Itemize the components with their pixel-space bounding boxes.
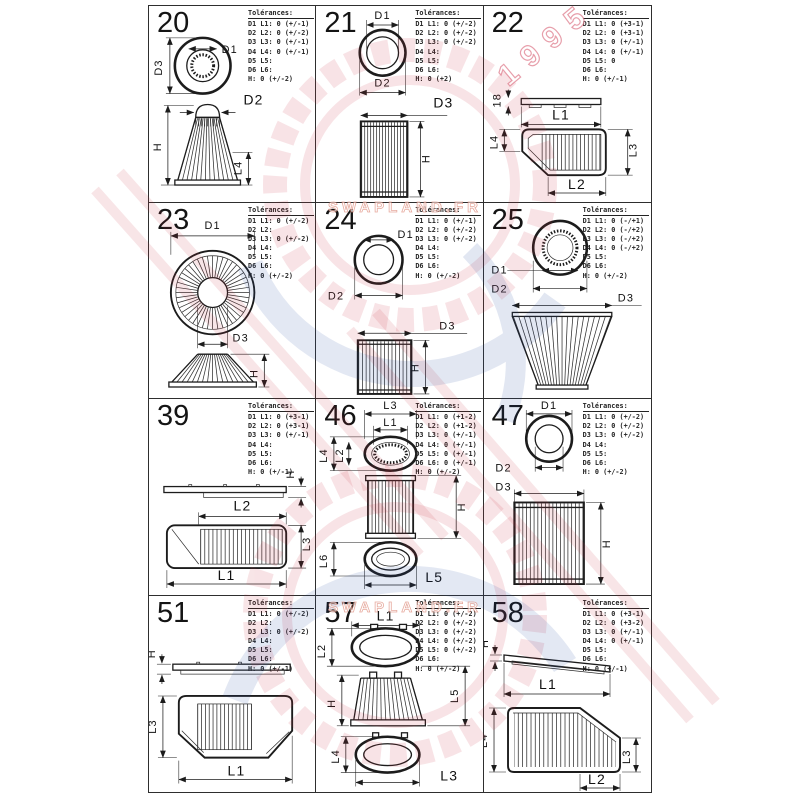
tolerance-line: H: 0 (+/-2)	[583, 468, 649, 477]
tolerance-line: D5 L5:	[415, 253, 481, 262]
tolerance-line: D6 L6:	[248, 262, 314, 271]
tolerance-title: Tolérances:	[415, 599, 481, 609]
tolerance-line: D4 L4:	[583, 441, 649, 450]
tolerance-line: D5 L5:	[248, 450, 314, 459]
filter-cell-22: 22 Tolérances: D1 L1: 0 (+3-1) D2 L2: 0 …	[484, 6, 651, 203]
dim-label-d2: D2	[328, 290, 344, 302]
dim-label-d1: D1	[398, 228, 414, 240]
dim-label-l3: L3	[384, 400, 399, 412]
dim-label-d2: D2	[495, 463, 511, 475]
tolerance-line: D5 L5:	[583, 450, 649, 459]
tolerance-line: D2 L2: 0 (+1-2)	[415, 422, 481, 431]
tolerance-table: Tolérances: D1 L1: 0 (-/+1) D2 L2: 0 (-/…	[583, 206, 649, 281]
dim-label-l3: L3	[301, 537, 313, 552]
dim-label-l4: L4	[232, 161, 244, 176]
tolerance-line: H: 0 (+/-2)	[583, 272, 649, 281]
dim-label-h: H	[326, 698, 338, 707]
tolerance-line: H: 0 (+2)	[415, 75, 481, 84]
tolerance-line: D6 L6:	[415, 66, 481, 75]
tolerance-line: D4 L4: 0 (+/-1)	[583, 48, 649, 57]
tolerance-title: Tolérances:	[583, 206, 649, 216]
tolerance-line: D5 L5:	[583, 253, 649, 262]
tolerance-table: Tolérances: D1 L1: 0 (+3-1) D2 L2: 0 (+3…	[583, 599, 649, 674]
tolerance-line: D1 L1: 0 (+/-2)	[415, 610, 481, 619]
tolerance-line: H: 0 (+/-2)	[415, 665, 481, 674]
tolerance-line: D3 L3: 0 (+/-1)	[248, 431, 314, 440]
tolerance-line: D1 L1: 0 (+/-2)	[248, 217, 314, 226]
tolerance-line: D3 L3: 0 (+/-2)	[415, 628, 481, 637]
tolerance-table: Tolérances: D1 L1: 0 (+/-2) D2 L2: D3 L3…	[248, 599, 314, 674]
filter-cell-21: 21 Tolérances: D1 L1: 0 (+/-2) D2 L2: 0 …	[316, 6, 483, 203]
dim-label-d1: D1	[375, 10, 391, 22]
tolerance-line: D6 L6:	[415, 655, 481, 664]
tolerance-line: D5 L5: 0 (+/-1)	[415, 450, 481, 459]
tolerance-line: H: 0 (+/-1)	[583, 75, 649, 84]
tolerance-line: D2 L2: 0 (-/+2)	[583, 226, 649, 235]
dim-label-h: H	[149, 649, 158, 658]
tolerance-line: H: 0 (+/-1)	[583, 665, 649, 674]
tolerance-line: D1 L1: 0 (+3-1)	[248, 413, 314, 422]
tolerance-line: D4 L4: 0 (-/+2)	[583, 244, 649, 253]
tolerance-line: D4 L4:	[248, 441, 314, 450]
tolerance-line: D6 L6:	[248, 66, 314, 75]
tolerance-line: D1 L1: 0 (+3-1)	[583, 20, 649, 29]
tolerance-table: Tolérances: D1 L1: 0 (+3-1) D2 L2: 0 (+3…	[583, 9, 649, 84]
dim-label-l1: L1	[218, 567, 236, 583]
dim-label-d1: D1	[204, 219, 220, 231]
tolerance-line: D2 L2: 0 (+3-1)	[583, 29, 649, 38]
tolerance-line: H: 0 (+/-2)	[415, 272, 481, 281]
tolerance-line: D6 L6:	[248, 459, 314, 468]
filter-number: 47	[492, 400, 524, 433]
tolerance-line: D2 L2: 0 (+3-1)	[248, 422, 314, 431]
tolerance-line: D3 L3: 0 (+/-2)	[415, 38, 481, 47]
filter-cell-57: 57 Tolérances: D1 L1: 0 (+/-2) D2 L2: 0 …	[316, 596, 483, 793]
tolerance-line: D4 L4:	[248, 637, 314, 646]
filter-cell-23: 23 Tolérances: D1 L1: 0 (+/-2) D2 L2: D3…	[149, 203, 316, 400]
tolerance-line: D3 L3: 0 (+/-1)	[583, 38, 649, 47]
tolerance-line: D2 L2:	[248, 619, 314, 628]
tolerance-line: D5 L5: 0 (+/-2)	[415, 646, 481, 655]
dim-label-l1: L1	[228, 762, 246, 778]
filter-number: 23	[157, 204, 189, 237]
tolerance-line: D3 L3: 0 (+/-1)	[415, 431, 481, 440]
tolerance-line: D2 L2: 0 (+/-2)	[415, 29, 481, 38]
dim-label-d3: D3	[153, 59, 165, 75]
tolerance-line: D4 L4: 0 (+/-2)	[415, 637, 481, 646]
tolerance-line: D1 L1: 0 (-/+1)	[583, 217, 649, 226]
tolerance-line: D5 L5: 0	[583, 57, 649, 66]
dim-label-l5: L5	[449, 688, 461, 703]
dim-label-d3: D3	[434, 94, 454, 110]
dim-label-d2: D2	[243, 91, 263, 107]
dim-label-h: H	[456, 502, 468, 511]
tolerance-title: Tolérances:	[248, 599, 314, 609]
tolerance-line: D1 L1: 0 (+/-1)	[248, 20, 314, 29]
tolerance-line: D6 L6:	[583, 262, 649, 271]
dim-label-d1: D1	[541, 400, 557, 412]
dim-label-l3: L3	[621, 749, 633, 764]
filter-cell-25: 25 Tolérances: D1 L1: 0 (-/+1) D2 L2: 0 …	[484, 203, 651, 400]
tolerance-line: D1 L1: 0 (+1-2)	[415, 413, 481, 422]
tolerance-line: D6 L6: 0 (+/-1)	[415, 459, 481, 468]
filter-cell-46: 46 Tolérances: D1 L1: 0 (+1-2) D2 L2: 0 …	[316, 399, 483, 596]
dim-label-l2: L2	[316, 643, 328, 658]
tolerance-table: Tolérances: D1 L1: 0 (+3-1) D2 L2: 0 (+3…	[248, 402, 314, 477]
filter-cell-24: 24 Tolérances: D1 L1: 0 (+/-1) D2 L2: 0 …	[316, 203, 483, 400]
dim-label-l2: L2	[234, 497, 252, 513]
dim-label-h: H	[248, 368, 260, 377]
tolerance-line: D6 L6:	[248, 655, 314, 664]
tolerance-line: D3 L3: 0 (+/-2)	[248, 235, 314, 244]
tolerance-line: D1 L1: 0 (+/-2)	[583, 413, 649, 422]
tolerance-line: D6 L6:	[583, 66, 649, 75]
tolerance-line: D2 L2: 0 (+/-2)	[415, 619, 481, 628]
dim-label-l3: L3	[149, 719, 159, 734]
tolerance-line: H: 0 (+/-1)	[248, 468, 314, 477]
tolerance-line: D2 L2:	[248, 226, 314, 235]
dim-label-l2: L2	[588, 771, 606, 787]
tolerance-title: Tolérances:	[415, 402, 481, 412]
tolerance-title: Tolérances:	[583, 9, 649, 19]
tolerance-line: D1 L1: 0 (+/-2)	[415, 20, 481, 29]
filter-diagram-grid: 20 Tolérances: D1 L1: 0 (+/-1) D2 L2: 0 …	[148, 5, 652, 793]
filter-cell-58: 58 Tolérances: D1 L1: 0 (+3-1) D2 L2: 0 …	[484, 596, 651, 793]
tolerance-line: D1 L1: 0 (+3-1)	[583, 610, 649, 619]
filter-number: 39	[157, 400, 189, 433]
dim-label-d3: D3	[495, 482, 511, 494]
filter-number: 24	[324, 204, 356, 237]
tolerance-line: D2 L2: 0 (+3-2)	[583, 619, 649, 628]
tolerance-table: Tolérances: D1 L1: 0 (+1-2) D2 L2: 0 (+1…	[415, 402, 481, 477]
tolerance-table: Tolérances: D1 L1: 0 (+/-2) D2 L2: D3 L3…	[248, 206, 314, 281]
filter-number: 20	[157, 7, 189, 40]
filter-number: 57	[324, 597, 356, 630]
dim-label-d2: D2	[491, 283, 507, 295]
dim-label-d1: D1	[222, 44, 238, 56]
dim-label-d2: D2	[375, 78, 391, 90]
tolerance-table: Tolérances: D1 L1: 0 (+/-1) D2 L2: 0 (+/…	[248, 9, 314, 84]
tolerance-title: Tolérances:	[248, 402, 314, 412]
dim-label-l4: L4	[330, 749, 342, 764]
dim-label-l2: L2	[334, 448, 346, 463]
tolerance-line: D5 L5:	[248, 253, 314, 262]
tolerance-table: Tolérances: D1 L1: 0 (+/-2) D2 L2: 0 (+/…	[583, 402, 649, 477]
dim-label-l1: L1	[377, 607, 395, 623]
tolerance-title: Tolérances:	[415, 206, 481, 216]
tolerance-line: D4 L4: 0 (+/-1)	[248, 48, 314, 57]
filter-number: 22	[492, 7, 524, 40]
catalog-page: { "page": {"background": "#ffffff", "lin…	[0, 0, 800, 800]
dim-label-d3: D3	[440, 320, 456, 332]
tolerance-line: D4 L4: 0 (+/-1)	[415, 441, 481, 450]
tolerance-line: D4 L4:	[415, 48, 481, 57]
tolerance-line: H: 0 (+/-2)	[248, 75, 314, 84]
tolerance-line: D3 L3: 0 (+/-1)	[248, 38, 314, 47]
tolerance-title: Tolérances:	[248, 9, 314, 19]
dim-label-l4: L4	[484, 733, 490, 748]
tolerance-line: H: 0 (+/-2)	[248, 272, 314, 281]
dim-label-h: H	[152, 142, 164, 151]
tolerance-line: D4 L4:	[248, 244, 314, 253]
dim-label-h: H	[600, 539, 612, 548]
tolerance-line: H: 0 (+/-2)	[415, 468, 481, 477]
tolerance-table: Tolérances: D1 L1: 0 (+/-2) D2 L2: 0 (+/…	[415, 599, 481, 674]
filter-cell-51: 51 Tolérances: D1 L1: 0 (+/-2) D2 L2: D3…	[149, 596, 316, 793]
filter-number: 51	[157, 597, 189, 630]
dim-label-l6: L6	[318, 554, 330, 569]
filter-number: 25	[492, 204, 524, 237]
tolerance-line: D6 L6:	[415, 262, 481, 271]
dim-label-l1: L1	[384, 417, 399, 429]
tolerance-title: Tolérances:	[415, 9, 481, 19]
dim-label-18: 18	[491, 93, 503, 108]
tolerance-line: D3 L3: 0 (+/-2)	[248, 628, 314, 637]
dim-label-d3: D3	[617, 292, 633, 304]
dim-label-l1: L1	[552, 106, 570, 122]
tolerance-line: D3 L3: 0 (+/-2)	[583, 431, 649, 440]
tolerance-line: D1 L1: 0 (+/-1)	[415, 217, 481, 226]
tolerance-line: D5 L5:	[415, 57, 481, 66]
tolerance-table: Tolérances: D1 L1: 0 (+/-1) D2 L2: 0 (+/…	[415, 206, 481, 281]
dim-label-l2: L2	[568, 176, 586, 192]
tolerance-line: D3 L3: 0 (-/+2)	[583, 235, 649, 244]
dim-label-l3: L3	[627, 143, 639, 158]
filter-number: 46	[324, 400, 356, 433]
filter-cell-39: 39 Tolérances: D1 L1: 0 (+3-1) D2 L2: 0 …	[149, 399, 316, 596]
tolerance-line: D4 L4:	[415, 244, 481, 253]
tolerance-line: D4 L4: 0 (+/-1)	[583, 637, 649, 646]
tolerance-title: Tolérances:	[248, 206, 314, 216]
tolerance-line: H: 0 (+/-1)	[248, 665, 314, 674]
dim-label-d1: D1	[491, 264, 507, 276]
tolerance-title: Tolérances:	[583, 402, 649, 412]
tolerance-line: D2 L2: 0 (+/-2)	[415, 226, 481, 235]
dim-label-l4: L4	[488, 135, 500, 150]
filter-number: 58	[492, 597, 524, 630]
dim-label-d3: D3	[233, 332, 249, 344]
tolerance-line: D3 L3: 0 (+/-2)	[415, 235, 481, 244]
tolerance-line: D6 L6:	[583, 459, 649, 468]
dim-label-h: H	[410, 362, 422, 371]
dim-label-l3: L3	[441, 767, 459, 783]
tolerance-line: D5 L5:	[583, 646, 649, 655]
filter-number: 21	[324, 7, 356, 40]
tolerance-line: D5 L5:	[248, 646, 314, 655]
dim-label-l5: L5	[426, 569, 444, 585]
tolerance-line: D5 L5:	[248, 57, 314, 66]
dim-label-h: H	[484, 638, 491, 647]
tolerance-line: D2 L2: 0 (+/-2)	[248, 29, 314, 38]
tolerance-line: D6 L6:	[583, 655, 649, 664]
dim-label-l4: L4	[318, 448, 330, 463]
tolerance-line: D2 L2: 0 (+/-2)	[583, 422, 649, 431]
tolerance-line: D1 L1: 0 (+/-2)	[248, 610, 314, 619]
dim-label-l1: L1	[539, 676, 557, 692]
tolerance-table: Tolérances: D1 L1: 0 (+/-2) D2 L2: 0 (+/…	[415, 9, 481, 84]
filter-cell-47: 47 Tolérances: D1 L1: 0 (+/-2) D2 L2: 0 …	[484, 399, 651, 596]
dim-label-h: H	[421, 154, 433, 163]
filter-cell-20: 20 Tolérances: D1 L1: 0 (+/-1) D2 L2: 0 …	[149, 6, 316, 203]
tolerance-title: Tolérances:	[583, 599, 649, 609]
tolerance-line: D3 L3: 0 (+/-1)	[583, 628, 649, 637]
